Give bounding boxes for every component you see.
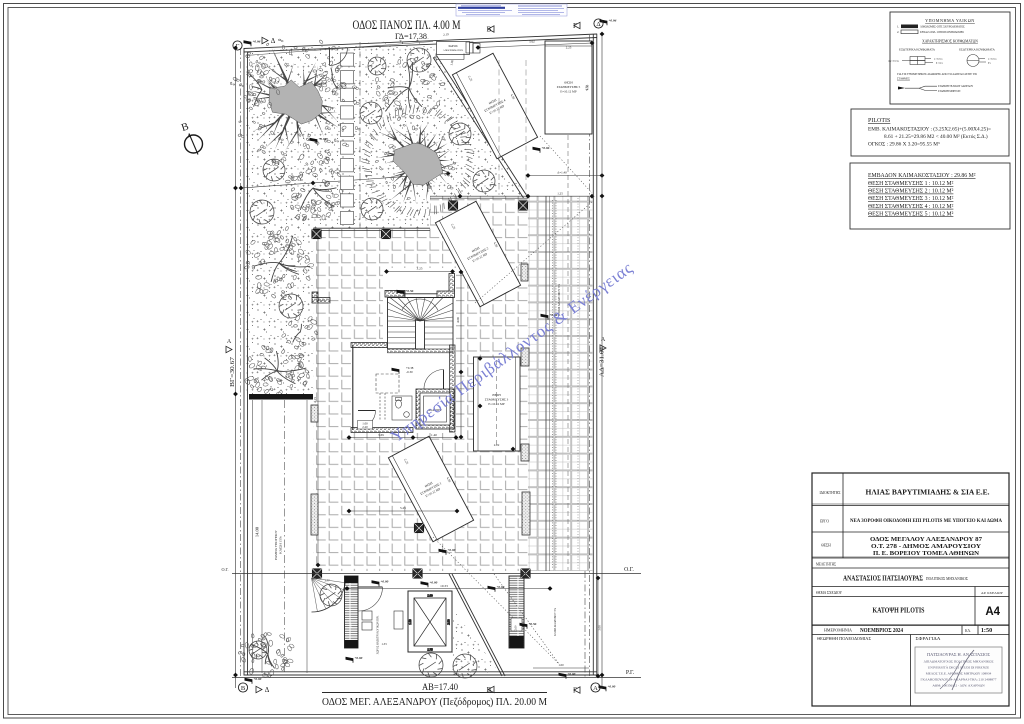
svg-text:ΣΤΑΘΜΕΥΣΗΣ 3: ΣΤΑΘΜΕΥΣΗΣ 3 <box>485 398 509 402</box>
svg-text:ΔΙΠΛΩΜΑΤΟΥΧΟΣ ΠΟΛΙΤΙΚΟΣ ΜΗΧΑΝΙ: ΔΙΠΛΩΜΑΤΟΥΧΟΣ ΠΟΛΙΤΙΚΟΣ ΜΗΧΑΝΙΚΟΣ <box>924 660 994 664</box>
svg-text:+0.90: +0.90 <box>448 548 456 552</box>
svg-text:αβγ: δείκτης: αβγ: δείκτης <box>888 60 899 63</box>
svg-text:10.33: 10.33 <box>440 584 448 588</box>
svg-text:1.75: 1.75 <box>427 648 433 652</box>
svg-text:+0.90: +0.90 <box>608 684 616 688</box>
svg-text:ΘΕΣΗ ΣΤΑΘΜΕΥΣΗΣ 3 : 10.12 Μ²: ΘΕΣΗ ΣΤΑΘΜΕΥΣΗΣ 3 : 10.12 Μ² <box>868 196 954 202</box>
svg-text:ΣΤΑΘΜΗ ΤΕΛΙΚΟΥ ΔΑΠΕΔΟΥ: ΣΤΑΘΜΗ ΤΕΛΙΚΟΥ ΔΑΠΕΔΟΥ <box>938 85 973 88</box>
svg-text:α: πλάτος: α: πλάτος <box>988 59 997 61</box>
svg-text:ΚΛΙΣΗ ΔΙΑΔΡΟΜΟΥ 5%: ΚΛΙΣΗ ΔΙΑΔΡΟΜΟΥ 5% <box>554 607 557 636</box>
svg-text:3.25: 3.25 <box>417 267 423 271</box>
svg-text:2.20: 2.20 <box>362 425 368 429</box>
svg-text:ΘΕΜΑ ΣΧΕΔΙΟΥ: ΘΕΜΑ ΣΧΕΔΙΟΥ <box>816 591 842 595</box>
svg-text:Ο.Τ. 278 - ΔΗΜΟΣ ΑΜΑΡΟΥΣΙΟΥ: Ο.Τ. 278 - ΔΗΜΟΣ ΑΜΑΡΟΥΣΙΟΥ <box>871 544 982 550</box>
svg-text:+0.90: +0.90 <box>381 579 389 583</box>
svg-text:ΓΙΑ ΤΙΣ ΥΨΟΜΕΤΡΙΚΕΣ ΔΙΑΦΟΡΕΣ Α: ΓΙΑ ΤΙΣ ΥΨΟΜΕΤΡΙΚΕΣ ΔΙΑΦΟΡΕΣ ΑΠΟ ΤΟ ΔΑΠΕ… <box>897 73 977 76</box>
svg-text:β: ύψος: β: ύψος <box>936 62 943 65</box>
svg-text:Ε=10.12 ΜΡ: Ε=10.12 ΜΡ <box>560 90 577 94</box>
svg-text:+0.90: +0.90 <box>430 580 438 584</box>
svg-text:Δ=1.40: Δ=1.40 <box>557 171 567 175</box>
svg-text:4.15: 4.15 <box>313 397 317 403</box>
svg-text:1.20: 1.20 <box>408 619 412 625</box>
svg-text:4.50: 4.50 <box>585 85 589 91</box>
svg-text:ΥΠΟΜΝΗΜΑ ΥΛΙΚΩΝ: ΥΠΟΜΝΗΜΑ ΥΛΙΚΩΝ <box>925 18 975 23</box>
svg-text:ΛΙΘΟΔΟΜΕΣ-ΟΠΤ. ΣΚΥΡΟΔΕΜΑΤΟΣ: ΛΙΘΟΔΟΜΕΣ-ΟΠΤ. ΣΚΥΡΟΔΕΜΑΤΟΣ <box>920 26 965 29</box>
svg-text:ΟΔΟΣ ΠΑΝΟΣ ΠΛ. 4.00 Μ: ΟΔΟΣ ΠΑΝΟΣ ΠΛ. 4.00 Μ <box>353 17 461 32</box>
svg-text:5.62: 5.62 <box>529 39 535 43</box>
svg-text:2.19: 2.19 <box>443 32 449 36</box>
svg-text:-0.30: -0.30 <box>406 370 413 374</box>
svg-text:ΡΑΜΠΑ ΥΠΟΓΕΙΟΥ: ΡΑΜΠΑ ΥΠΟΓΕΙΟΥ <box>274 530 278 560</box>
svg-text:Ε=10.12 ΜΡ: Ε=10.12 ΜΡ <box>488 402 505 406</box>
svg-text:ΘΕΣΗ: ΘΕΣΗ <box>492 393 501 397</box>
svg-text:ΟΔΟΣ ΜΕΓΑΛΟΥ ΑΛΕΞΑΝΔΡΟΥ 87: ΟΔΟΣ ΜΕΓΑΛΟΥ ΑΛΕΞΑΝΔΡΟΥ 87 <box>870 537 982 543</box>
svg-text:ΘΕΣΗ: ΘΕΣΗ <box>821 544 831 548</box>
svg-text:1.77: 1.77 <box>324 579 330 583</box>
svg-text:ΟΔΟΣ ΜΕΓ. ΑΛΕΞΑΝΔΡΟΥ (Πεζόδ: ΟΔΟΣ ΜΕΓ. ΑΛΕΞΑΝΔΡΟΥ (Πεζόδρομος) ΠΛ. 20… <box>322 696 547 708</box>
svg-text:Π. Ε. ΒΟΡΕΙΟΥ ΤΟΜΕΑ ΑΘΗΝΩΝ: Π. Ε. ΒΟΡΕΙΟΥ ΤΟΜΕΑ ΑΘΗΝΩΝ <box>873 551 980 557</box>
svg-text:PILOTIS: PILOTIS <box>868 118 890 124</box>
svg-text:+0.90: +0.90 <box>497 585 505 589</box>
svg-text:8.61 + 21.25=29.86 Μ2 < 40.00: 8.61 + 21.25=29.86 Μ2 < 40.00 Μ² (Εκτός … <box>884 133 988 140</box>
svg-text:4.06: 4.06 <box>456 317 460 323</box>
svg-text:2.60: 2.60 <box>515 625 518 630</box>
svg-text:A4: A4 <box>985 606 1000 618</box>
svg-text:+0.96: +0.96 <box>609 18 617 22</box>
svg-text:Ο.Γ.: Ο.Γ. <box>624 567 634 573</box>
svg-text:Δ: Δ <box>271 37 276 45</box>
svg-text:2.: 2. <box>897 30 900 34</box>
svg-text:2.22: 2.22 <box>494 443 500 447</box>
svg-text:ΘΕΣΗ ΣΤΑΘΜΕΥΣΗΣ 1 : 10.12 Μ²: ΘΕΣΗ ΣΤΑΘΜΕΥΣΗΣ 1 : 10.12 Μ² <box>868 181 954 187</box>
svg-text:ΕΣΩΤΕΡΙΚΑ ΚΟΥΦΩΜΑΤΑ: ΕΣΩΤΕΡΙΚΑ ΚΟΥΦΩΜΑΤΑ <box>959 48 995 52</box>
svg-text:1.: 1. <box>897 25 900 29</box>
svg-text:ΘΕΣΗ ΣΤΑΘΜΕΥΣΗΣ 5 : 10.12 Μ²: ΘΕΣΗ ΣΤΑΘΜΕΥΣΗΣ 5 : 10.12 Μ² <box>868 211 954 217</box>
svg-text:ΘΕΣΗ ΣΤΑΘΜΕΥΣΗΣ 4 : 10.12 Μ²: ΘΕΣΗ ΣΤΑΘΜΕΥΣΗΣ 4 : 10.12 Μ² <box>868 204 954 210</box>
svg-text:ΕΜΒ. ΚΛΙΜΑΚΟΣΤΑΣΙΟΥ : (3.25Χ2.: ΕΜΒ. ΚΛΙΜΑΚΟΣΤΑΣΙΟΥ : (3.25Χ2.65)+(5.00Χ… <box>868 126 991 133</box>
svg-text:Α: Α <box>227 339 232 345</box>
svg-text:4.50: 4.50 <box>453 672 459 676</box>
svg-text:ΒΓ=30.67: ΒΓ=30.67 <box>229 356 236 387</box>
svg-text:ΘΕΣΗ ΣΤΑΘΜΕΥΣΗΣ 2 : 10.12 Μ²: ΘΕΣΗ ΣΤΑΘΜΕΥΣΗΣ 2 : 10.12 Μ² <box>868 189 954 195</box>
svg-text:Β: Β <box>241 685 246 692</box>
svg-text:+0.90: +0.90 <box>568 672 576 676</box>
svg-text:ΕΡΓΟ: ΕΡΓΟ <box>820 520 829 524</box>
svg-text:ΣΤΑΘΜΗ ΜΠΕΤΟΝ: ΣΤΑΘΜΗ ΜΠΕΤΟΝ <box>938 90 961 93</box>
svg-text:+0.90: +0.90 <box>254 677 262 681</box>
svg-text:+0.56: +0.56 <box>529 622 537 626</box>
svg-text:Ο.Γ.: Ο.Γ. <box>221 567 228 572</box>
svg-text:ΑΡ. ΣΧΕΔΙΟΥ: ΑΡ. ΣΧΕΔΙΟΥ <box>981 591 1004 595</box>
svg-text:3.08: 3.08 <box>598 625 602 631</box>
svg-text:Ρ.Γ.: Ρ.Γ. <box>626 670 635 676</box>
svg-text:ΑΝΑΣΤΑΣΙΟΣ ΠΑΤΣΙΑΟΥΡΑΣ: ΑΝΑΣΤΑΣΙΟΣ ΠΑΤΣΙΑΟΥΡΑΣ <box>843 575 923 583</box>
svg-text:ΝΕΑ 3ΟΡΟΦΗ ΟΙΚΟΔΟΜΗ ΕΠΙ PILOTI: ΝΕΑ 3ΟΡΟΦΗ ΟΙΚΟΔΟΜΗ ΕΠΙ PILOTIS ΜΕ ΥΠΟΓΕ… <box>850 519 1003 524</box>
svg-text:ΗΜΕΡΟΜΗΝΙΑ: ΗΜΕΡΟΜΗΝΙΑ <box>824 629 852 633</box>
svg-text:+0.96: +0.96 <box>253 39 261 43</box>
svg-text:Α: Α <box>593 685 598 692</box>
svg-text:ΙΔΙΟΚΤΗΤΗΣ: ΙΔΙΟΚΤΗΤΗΣ <box>820 491 841 495</box>
svg-text:Γ: Γ <box>236 43 240 50</box>
svg-text:ΚΑΤΟΨΗ PILOTIS: ΚΑΤΟΨΗ PILOTIS <box>873 607 925 615</box>
svg-text:ΕΜΒΑΔΟΝ ΚΛΙΜΑΚΟΣΤΑΣΙΟΥ : 29.86: ΕΜΒΑΔΟΝ ΚΛΙΜΑΚΟΣΤΑΣΙΟΥ : 29.86 Μ² <box>868 173 976 179</box>
svg-text:ΣΦΡΑΓΙΔΑ: ΣΦΡΑΓΙΔΑ <box>916 637 942 641</box>
svg-text:ΜΕΛΕΤΗΤΗΣ: ΜΕΛΕΤΗΤΗΣ <box>816 563 836 567</box>
svg-text:ΑΔ=31.64: ΑΔ=31.64 <box>599 346 606 377</box>
svg-text:1.40: 1.40 <box>431 433 437 437</box>
svg-text:3.65: 3.65 <box>378 433 384 437</box>
svg-text:ΠΑΤΣΙΑΟΥΡΑΣ Η. ΑΝΑΣΤΑΣΙΟΣ: ΠΑΤΣΙΑΟΥΡΑΣ Η. ΑΝΑΣΤΑΣΙΟΣ <box>927 652 990 657</box>
svg-text:2.30: 2.30 <box>447 619 451 625</box>
svg-text:ΣΕΝΑΖ-ΟΠΛ. ΟΠΤΟΠΛΙΝΘΟΔΟΜΕΣ: ΣΕΝΑΖ-ΟΠΛ. ΟΠΤΟΠΛΙΝΘΟΔΟΜΕΣ <box>920 31 964 34</box>
svg-text:ΟΓΚΟΣ : 29.86 Χ 3.20=95.55 Μ³: ΟΓΚΟΣ : 29.86 Χ 3.20=95.55 Μ³ <box>868 142 940 148</box>
svg-text:α: πλάτος: α: πλάτος <box>934 59 943 61</box>
svg-text:ΑΦΜ: 100356112 - ΔΟΥ: ΑΧΑΡΝΩΝ: ΑΦΜ: 100356112 - ΔΟΥ: ΑΧΑΡΝΩΝ <box>932 684 985 688</box>
svg-text:+0.96: +0.96 <box>542 146 550 150</box>
svg-text:ΑΠΟΡΡΙΜΜΑΤΩΝ: ΑΠΟΡΡΙΜΜΑΤΩΝ <box>443 49 463 52</box>
svg-text:1.90: 1.90 <box>427 594 433 598</box>
svg-text:+0.90: +0.90 <box>355 656 363 660</box>
svg-text:β/γ: β/γ <box>988 62 991 65</box>
svg-text:Α: Α <box>601 337 606 343</box>
svg-text:1.00: 1.00 <box>558 663 564 667</box>
svg-text:14.00: 14.00 <box>255 526 260 537</box>
svg-text:ΝΟΕΜΒΡΙΟΣ 2024: ΝΟΕΜΒΡΙΟΣ 2024 <box>860 627 903 634</box>
svg-text:+0.90: +0.90 <box>319 137 327 141</box>
svg-text:ΗΛΙΑΣ ΒΑΡΥΤΙΜΙΑΔΗΣ & ΣΙΑ Ε: ΗΛΙΑΣ ΒΑΡΥΤΙΜΙΑΔΗΣ & ΣΙΑ Ε.Ε. <box>866 488 990 497</box>
svg-text:ΚΛΙΣΗ 15%: ΚΛΙΣΗ 15% <box>279 536 283 554</box>
svg-text:ΣΤΑΘΜΕΥΣΗΣ 5: ΣΤΑΘΜΕΥΣΗΣ 5 <box>557 85 581 89</box>
svg-text:Δ: Δ <box>596 21 600 28</box>
svg-text:2.25: 2.25 <box>566 46 572 50</box>
svg-text:ΧΩΡΟΣ ΗΛΕΚΤΡΟΛΟΓΙΚΩΝ ΠΙΝ.: ΧΩΡΟΣ ΗΛΕΚΤΡΟΛΟΓΙΚΩΝ ΠΙΝ. <box>377 615 380 654</box>
svg-text:+0.56: +0.56 <box>406 289 414 293</box>
svg-text:ΧΑΡΑΚΤΗΡΙΣΜΟΣ ΚΟΥΦΩΜΑΤΩΝ: ΧΑΡΑΚΤΗΡΙΣΜΟΣ ΚΟΥΦΩΜΑΤΩΝ <box>922 40 978 44</box>
svg-text:ΠΟΛΙΤΙΚΟΣ ΜΗΧΑΝΙΚΟΣ: ΠΟΛΙΤΙΚΟΣ ΜΗΧΑΝΙΚΟΣ <box>926 577 969 581</box>
svg-text:ΓΚΛΑΒΟΠΟΥΛΟΥ 24-ΑΧΑΡΝΑΙ-ΤΗΛ: 2: ΓΚΛΑΒΟΠΟΥΛΟΥ 24-ΑΧΑΡΝΑΙ-ΤΗΛ: 210 2408877 <box>921 678 997 682</box>
svg-text:ΧΩΡΟΣ: ΧΩΡΟΣ <box>448 44 458 48</box>
svg-text:ΚΛ.: ΚΛ. <box>965 629 971 633</box>
svg-text:1:50: 1:50 <box>981 627 992 634</box>
svg-text:3.40: 3.40 <box>297 178 303 182</box>
svg-text:Δ: Δ <box>265 686 270 694</box>
svg-text:2.60: 2.60 <box>349 622 353 628</box>
svg-text:ΘΕΣΗ: ΘΕΣΗ <box>564 81 573 85</box>
svg-text:ΑΒ=17.40: ΑΒ=17.40 <box>422 682 458 692</box>
svg-text:1.25: 1.25 <box>557 192 563 196</box>
svg-text:5.25: 5.25 <box>400 506 406 510</box>
svg-text:ΣΤΑΘΜΕΣ: ΣΤΑΘΜΕΣ <box>897 78 910 81</box>
svg-text:1.33: 1.33 <box>381 642 387 646</box>
svg-text:ΕΞΩΤΕΡΙΚΑ ΚΟΥΦΩΜΑΤΑ: ΕΞΩΤΕΡΙΚΑ ΚΟΥΦΩΜΑΤΑ <box>899 48 936 52</box>
svg-text:ΘΕΩΡΗΘΗ ΠΟΛΕΟΔΟΜΙΑΣ: ΘΕΩΡΗΘΗ ΠΟΛΕΟΔΟΜΙΑΣ <box>817 637 871 641</box>
